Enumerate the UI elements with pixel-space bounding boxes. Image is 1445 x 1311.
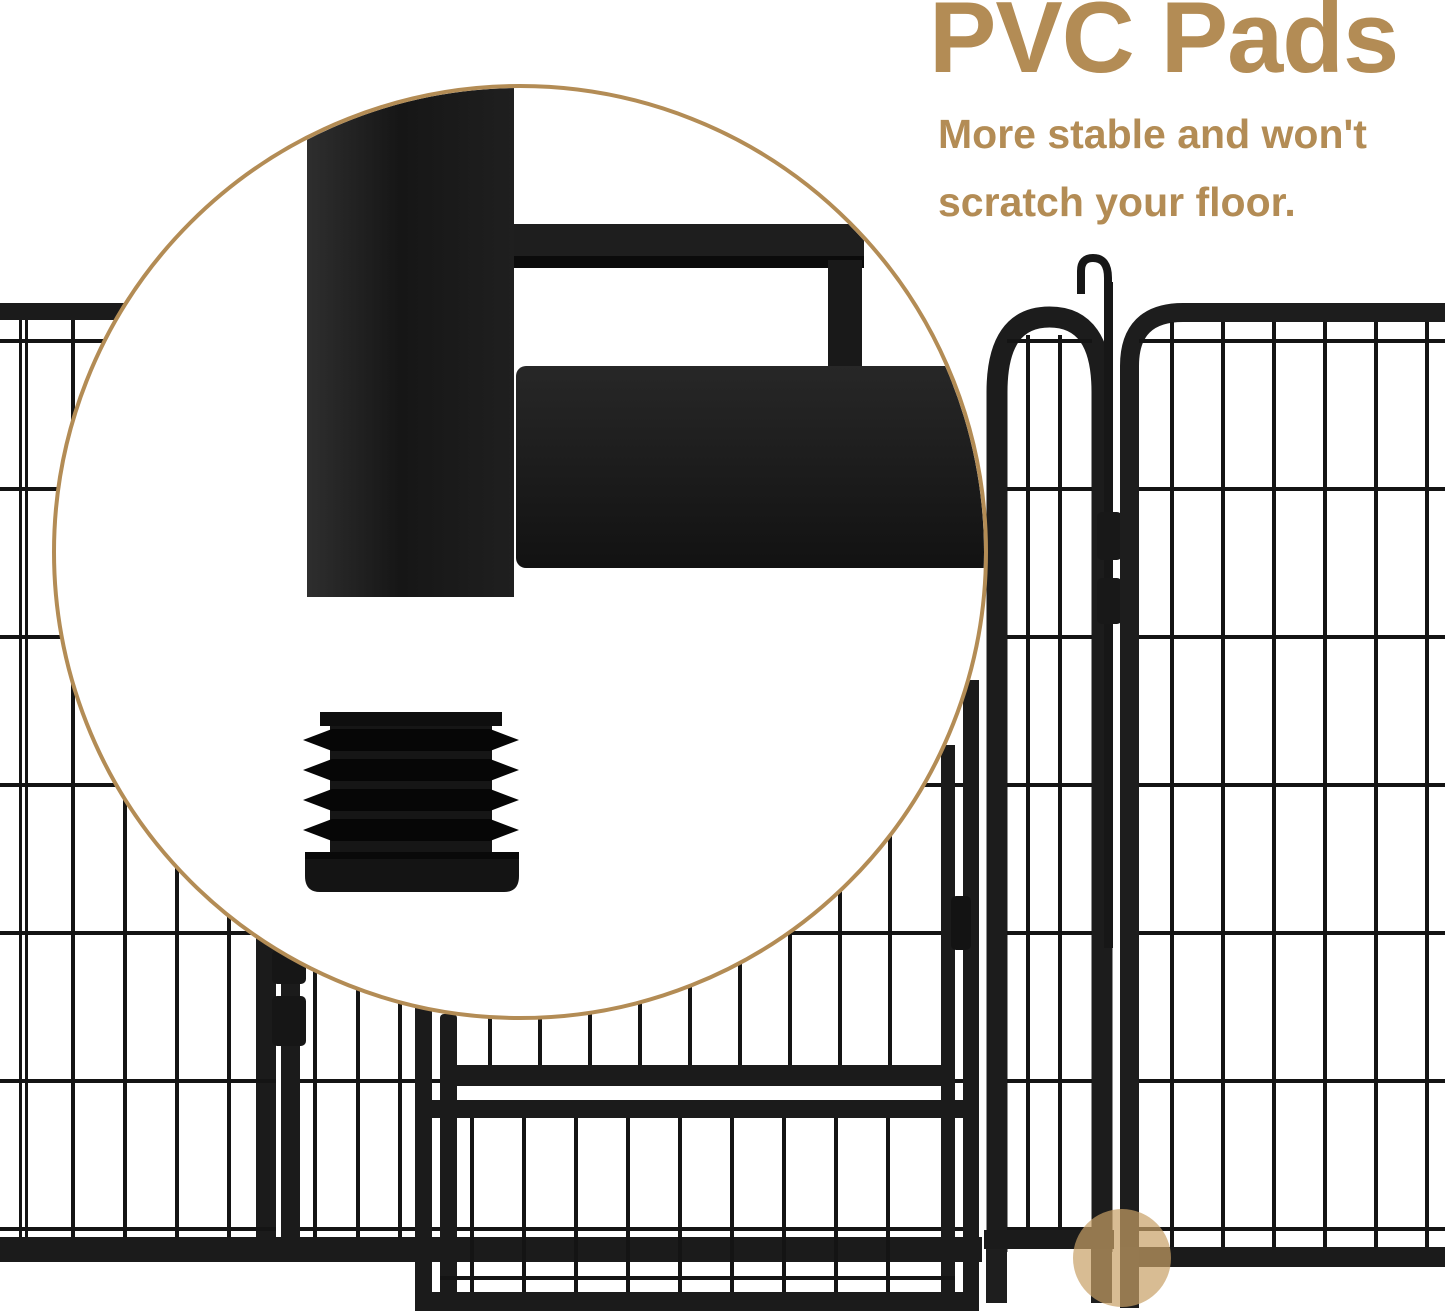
hinge-tube: [1097, 578, 1122, 624]
gate-wires: [440, 1118, 955, 1292]
page-title: PVC Pads: [929, 0, 1398, 89]
frame: [1130, 313, 1445, 1253]
subtitle: More stable and won't scratch your floor…: [938, 100, 1367, 236]
pad-fin: [303, 819, 519, 841]
hinge-tube: [951, 896, 971, 950]
hinge-tube: [1097, 512, 1122, 560]
foot: [986, 1249, 1007, 1303]
pad-base-lip: [305, 852, 519, 859]
pad-fin: [303, 729, 519, 751]
arched-door-panel: [984, 317, 1114, 1303]
grid-wires: [1007, 335, 1092, 1231]
product-image: PVC Pads More stable and won't scratch y…: [0, 0, 1445, 1311]
gate-bottom-rail: [415, 1292, 979, 1311]
pvc-pad: [303, 712, 519, 892]
fence-panel-right: [1120, 313, 1445, 1309]
gate-mid-rail: [415, 1100, 979, 1118]
magnified-wire-post: [828, 260, 862, 368]
pad-collar: [320, 712, 502, 726]
grid-wires: [1139, 322, 1445, 1247]
pad-fin: [303, 789, 519, 811]
subtitle-line-2: scratch your floor.: [938, 168, 1367, 236]
gate-right-stile: [941, 745, 955, 1311]
subtitle-line-1: More stable and won't: [938, 100, 1367, 168]
magnified-bottom-rail: [516, 366, 994, 568]
pad-fin: [303, 759, 519, 781]
hinge-tube: [272, 996, 306, 1046]
magnified-wire-shadow: [514, 256, 864, 268]
hook-curve: [1081, 258, 1108, 294]
pad-base-cap: [305, 854, 519, 892]
gate-top-rail: [440, 1065, 955, 1086]
magnified-leg-tube: [307, 58, 514, 597]
panel-right-stile: [963, 680, 979, 1311]
pad-location-highlight-circle: [1073, 1209, 1171, 1307]
gate-stile: [440, 1014, 457, 1311]
